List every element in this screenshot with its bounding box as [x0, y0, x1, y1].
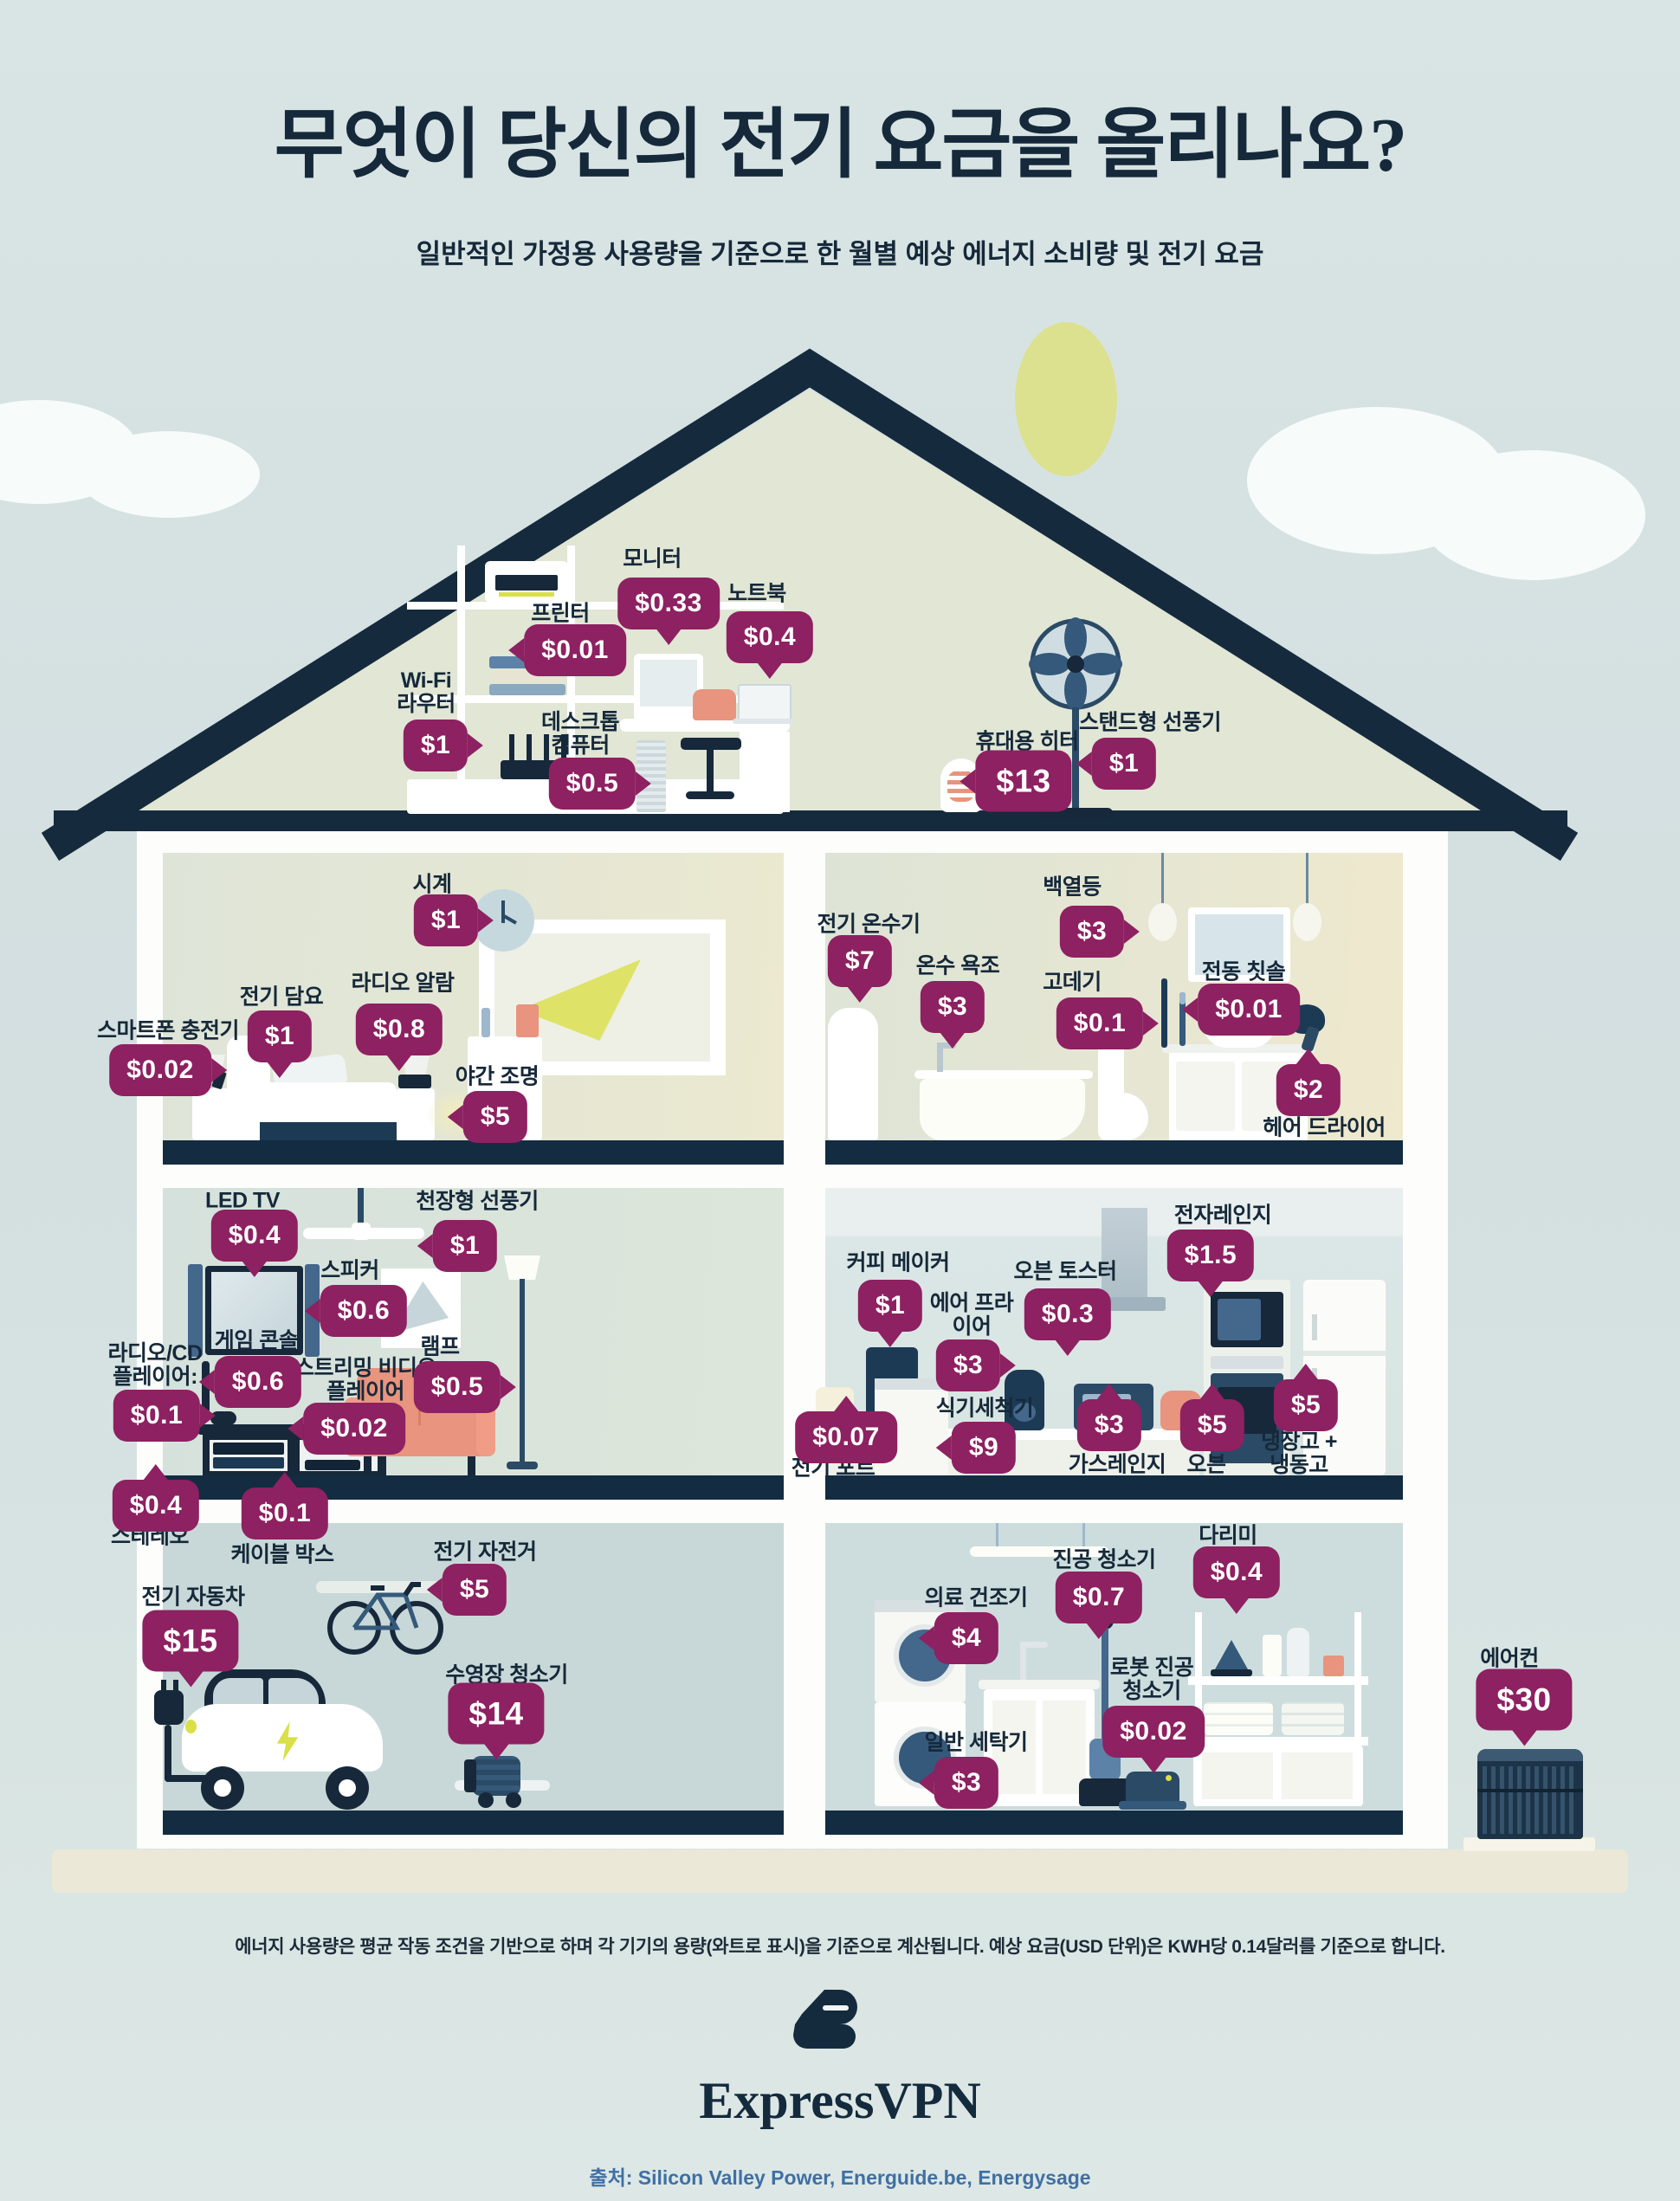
label-electric-car: 전기 자동차 — [142, 1586, 245, 1610]
badge-clock: $1 — [414, 894, 478, 946]
callout-layer: 모니터$0.33노트북$0.4프린터$0.01Wi-Fi 라우터$1데스크톱 컴… — [0, 0, 1680, 2201]
badge-smartphone-charger: $0.02 — [109, 1044, 211, 1096]
badge-hair-dryer: $2 — [1276, 1064, 1341, 1116]
badge-radio-alarm: $0.8 — [356, 1004, 443, 1055]
label-standing-fan: 스탠드형 선풍기 — [1079, 712, 1221, 735]
label-air-fryer: 에어 프라 이어 — [930, 1292, 1013, 1339]
label-vacuum-cleaner: 진공 청소기 — [1053, 1549, 1156, 1572]
badge-pool-cleaner: $14 — [448, 1683, 544, 1745]
badge-electric-car: $15 — [142, 1610, 238, 1672]
badge-speaker: $0.6 — [320, 1285, 407, 1337]
badge-led-tv: $0.4 — [211, 1210, 298, 1262]
label-night-light: 야간 조명 — [456, 1066, 539, 1089]
footer-disclaimer: 에너지 사용량은 평균 작동 조건을 기반으로 하며 각 기기의 용량(와트로 … — [0, 1933, 1680, 1959]
badge-air-conditioner: $30 — [1476, 1669, 1572, 1731]
label-robot-vacuum: 로봇 진공 청소기 — [1110, 1656, 1193, 1703]
label-radio-cd-player: 라디오/CD 플레이어: — [107, 1342, 202, 1389]
badge-lamp: $0.5 — [414, 1361, 501, 1413]
badge-electric-bike: $5 — [443, 1564, 507, 1616]
badge-printer: $0.01 — [524, 624, 626, 676]
label-electric-toothbrush: 전동 칫솔 — [1202, 961, 1285, 984]
brand-wordmark: ExpressVPN — [0, 2071, 1680, 2131]
badge-game-console: $0.6 — [215, 1356, 301, 1408]
label-toaster-oven: 오븐 토스터 — [1014, 1261, 1117, 1284]
badge-oven: $5 — [1180, 1399, 1244, 1451]
badge-electric-toothbrush: $0.01 — [1198, 984, 1300, 1036]
label-speaker: 스피커 — [320, 1260, 379, 1283]
label-electric-bike: 전기 자전거 — [434, 1541, 537, 1565]
label-electric-blanket: 전기 담요 — [240, 986, 323, 1010]
badge-iron: $0.4 — [1193, 1546, 1280, 1598]
badge-standing-fan: $1 — [1092, 738, 1156, 790]
badge-radio-cd-player: $0.1 — [113, 1390, 200, 1442]
badge-dishwasher: $9 — [952, 1422, 1016, 1474]
label-desktop-computer: 데스크톱 컴퓨터 — [541, 711, 619, 758]
badge-monitor: $0.33 — [617, 578, 720, 629]
label-fridge-freezer: 냉장고 + 냉동고 — [1261, 1430, 1337, 1477]
badge-desktop-computer: $0.5 — [549, 758, 636, 810]
badge-air-fryer: $3 — [936, 1339, 1000, 1391]
label-dishwasher: 식기세척기 — [936, 1397, 1034, 1421]
badge-ceiling-fan: $1 — [433, 1220, 497, 1272]
label-laptop: 노트북 — [727, 583, 786, 606]
label-monitor: 모니터 — [623, 548, 682, 571]
badge-stereo: $0.4 — [113, 1480, 199, 1532]
badge-coffee-maker: $1 — [858, 1280, 922, 1332]
label-clothes-dryer: 의료 건조기 — [925, 1587, 1028, 1610]
badge-robot-vacuum: $0.02 — [1102, 1706, 1205, 1758]
footer-sources: 출처: Silicon Valley Power, Energuide.be, … — [0, 2161, 1680, 2191]
label-game-console: 게임 콘솔 — [215, 1330, 298, 1353]
label-curling-iron: 고데기 — [1043, 971, 1102, 995]
label-clock: 시계 — [412, 874, 451, 897]
label-oven: 오븐 — [1186, 1454, 1225, 1477]
label-ceiling-fan: 천장형 선풍기 — [416, 1191, 538, 1214]
badge-laptop: $0.4 — [727, 611, 813, 663]
label-iron: 다리미 — [1199, 1525, 1257, 1548]
badge-washing-machine: $3 — [934, 1757, 998, 1809]
label-gas-range: 가스레인지 — [1069, 1454, 1166, 1477]
badge-toaster-oven: $0.3 — [1024, 1288, 1111, 1340]
badge-electric-blanket: $1 — [248, 1010, 312, 1062]
badge-gas-range: $3 — [1077, 1399, 1141, 1451]
badge-clothes-dryer: $4 — [934, 1612, 998, 1664]
badge-incandescent-bulb: $3 — [1060, 906, 1124, 958]
expressvpn-logo-icon — [769, 1985, 859, 2061]
badge-electric-kettle: $0.07 — [795, 1411, 897, 1463]
label-coffee-maker: 커피 메이커 — [847, 1252, 950, 1275]
label-lamp: 램프 — [420, 1336, 459, 1359]
label-printer: 프린터 — [531, 603, 590, 626]
label-microwave: 전자레인지 — [1174, 1204, 1272, 1228]
badge-fridge-freezer: $5 — [1274, 1379, 1338, 1431]
badge-vacuum-cleaner: $0.7 — [1056, 1572, 1142, 1623]
label-incandescent-bulb: 백열등 — [1043, 876, 1102, 900]
label-radio-alarm: 라디오 알람 — [352, 972, 455, 996]
label-washing-machine: 일반 세탁기 — [925, 1732, 1028, 1755]
label-air-conditioner: 에어컨 — [1480, 1648, 1539, 1671]
label-hair-dryer: 헤어 드라이어 — [1263, 1117, 1385, 1140]
badge-microwave: $1.5 — [1167, 1230, 1254, 1281]
label-cable-box: 케이블 박스 — [231, 1544, 334, 1567]
badge-curling-iron: $0.1 — [1056, 997, 1143, 1049]
badge-water-heater: $7 — [828, 935, 892, 987]
infographic-poster: 무엇이 당신의 전기 요금을 올리나요? 일반적인 가정용 사용량을 기준으로 … — [0, 0, 1680, 2201]
badge-wifi-router: $1 — [404, 720, 468, 771]
badge-hot-tub: $3 — [921, 981, 985, 1033]
badge-portable-heater: $13 — [975, 751, 1071, 812]
badge-cable-box: $0.1 — [242, 1488, 328, 1539]
badge-night-light: $5 — [463, 1091, 527, 1143]
badge-streaming-player: $0.02 — [303, 1403, 405, 1455]
label-smartphone-charger: 스마트폰 충전기 — [97, 1020, 239, 1043]
label-wifi-router: Wi-Fi 라우터 — [397, 669, 456, 716]
label-hot-tub: 온수 욕조 — [916, 955, 999, 978]
label-water-heater: 전기 온수기 — [817, 913, 921, 937]
